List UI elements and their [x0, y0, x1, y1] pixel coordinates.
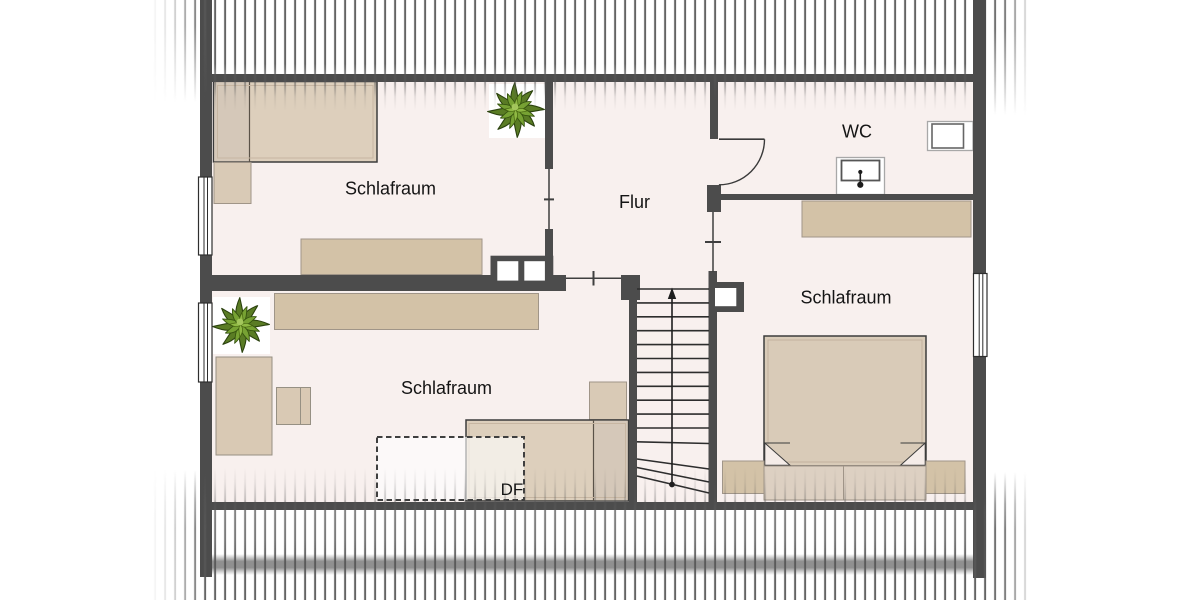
svg-text:Schlafraum: Schlafraum — [800, 288, 891, 308]
svg-text:Schlafraum: Schlafraum — [345, 179, 436, 199]
svg-text:Flur: Flur — [619, 192, 650, 212]
svg-text:Schlafraum: Schlafraum — [401, 378, 492, 398]
svg-text:DF: DF — [501, 480, 524, 499]
svg-text:WC: WC — [842, 122, 872, 142]
